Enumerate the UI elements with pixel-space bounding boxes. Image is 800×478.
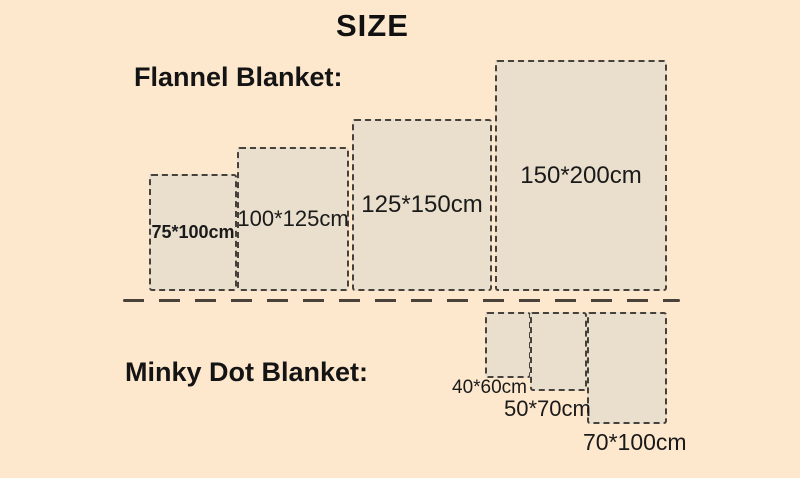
flannel-size-rect-100x125: 100*125cm [237,147,349,291]
page-title: SIZE [336,8,409,44]
size-chart: SIZE Flannel Blanket: 75*100cm 100*125cm… [0,0,800,478]
flannel-size-label-100x125: 100*125cm [237,206,348,232]
flannel-size-rect-75x100: 75*100cm [149,174,237,291]
flannel-section-label: Flannel Blanket: [134,62,343,93]
minky-size-label-50x70: 50*70cm [504,396,591,422]
flannel-size-label-75x100: 75*100cm [151,222,234,243]
minky-section-label: Minky Dot Blanket: [125,357,368,388]
flannel-size-rect-125x150: 125*150cm [352,119,492,291]
minky-size-rect-50x70 [530,312,587,391]
minky-size-label-70x100: 70*100cm [583,429,687,456]
flannel-size-label-150x200: 150*200cm [520,162,641,190]
section-divider [123,299,680,302]
minky-size-rect-40x60 [485,312,531,378]
flannel-size-rect-150x200: 150*200cm [495,60,667,291]
flannel-size-label-125x150: 125*150cm [361,191,482,219]
minky-size-rect-70x100 [587,312,667,424]
